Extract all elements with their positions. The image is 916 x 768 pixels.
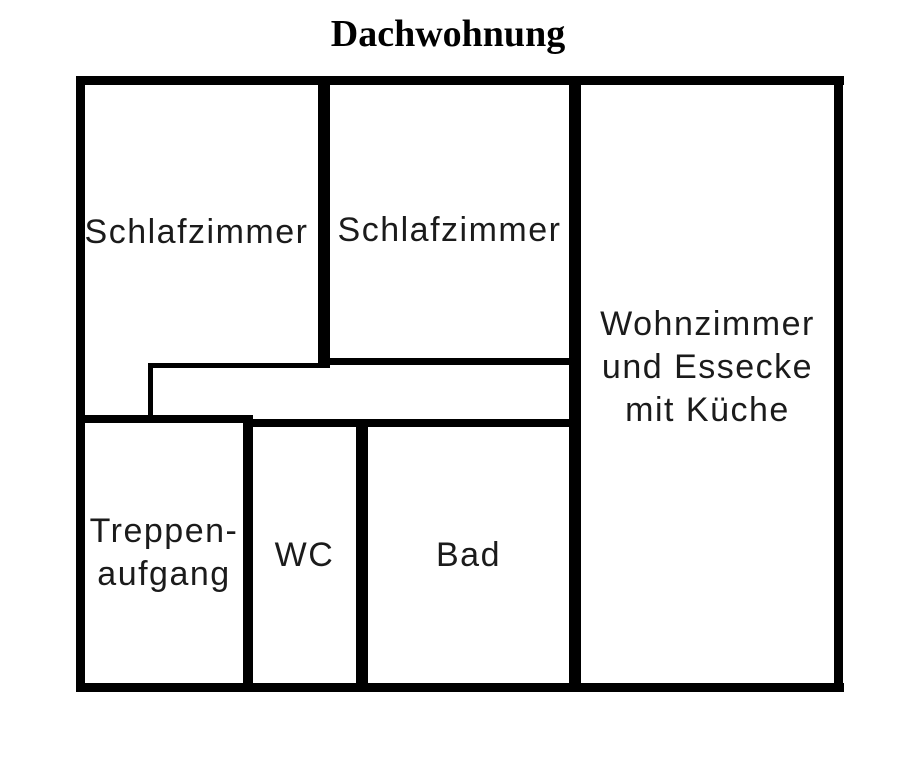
room-wc: WC: [253, 427, 356, 683]
room-label-line: WC: [275, 534, 335, 577]
room-label-line: aufgang: [90, 553, 239, 596]
wall-wc-bad-divider: [356, 419, 368, 683]
room-wohnzimmer-essecke-kueche: Wohnzimmer und Essecke mit Küche: [581, 85, 834, 683]
room-label-wc: WC: [275, 534, 335, 577]
room-schlafzimmer-1: Schlafzimmer: [85, 85, 318, 363]
wall-wc-bad-top: [243, 419, 581, 427]
room-label-line: mit Küche: [600, 389, 815, 432]
room-treppenaufgang: Treppen- aufgang: [85, 423, 243, 683]
room-label-line: Schlafzimmer: [85, 211, 309, 254]
room-label-line: Bad: [436, 534, 501, 577]
room-label-bad: Bad: [436, 534, 501, 577]
plan-title: Dachwohnung: [0, 12, 906, 56]
room-label-line: Treppen-: [90, 510, 239, 553]
room-label-schlafzimmer-1: Schlafzimmer: [85, 211, 309, 254]
room-schlafzimmer-2: Schlafzimmer: [330, 85, 569, 358]
wall-outer-top: [76, 76, 844, 85]
room-label-wohnzimmer: Wohnzimmer und Essecke mit Küche: [600, 303, 815, 432]
room-label-line: und Essecke: [600, 346, 815, 389]
wall-corridor-step: [148, 363, 153, 419]
room-bad: Bad: [368, 427, 569, 683]
wall-stairs-top: [76, 415, 253, 423]
wall-bedrooms-divider: [318, 85, 330, 366]
wall-stairs-right: [243, 415, 253, 683]
room-label-treppenaufgang: Treppen- aufgang: [90, 510, 239, 596]
wall-outer-bottom: [76, 683, 844, 692]
floor-plan-canvas: Dachwohnung Schlafzimmer Schlafzimmer Wo…: [0, 0, 916, 768]
wall-outer-left: [76, 76, 85, 692]
room-label-schlafzimmer-2: Schlafzimmer: [338, 209, 562, 252]
room-label-line: Schlafzimmer: [338, 209, 562, 252]
wall-bedroom1-bottom: [148, 363, 330, 368]
wall-outer-right: [834, 76, 843, 692]
wall-bedroom2-bottom: [318, 358, 581, 365]
room-label-line: Wohnzimmer: [600, 303, 815, 346]
wall-livingroom-divider: [569, 85, 581, 683]
